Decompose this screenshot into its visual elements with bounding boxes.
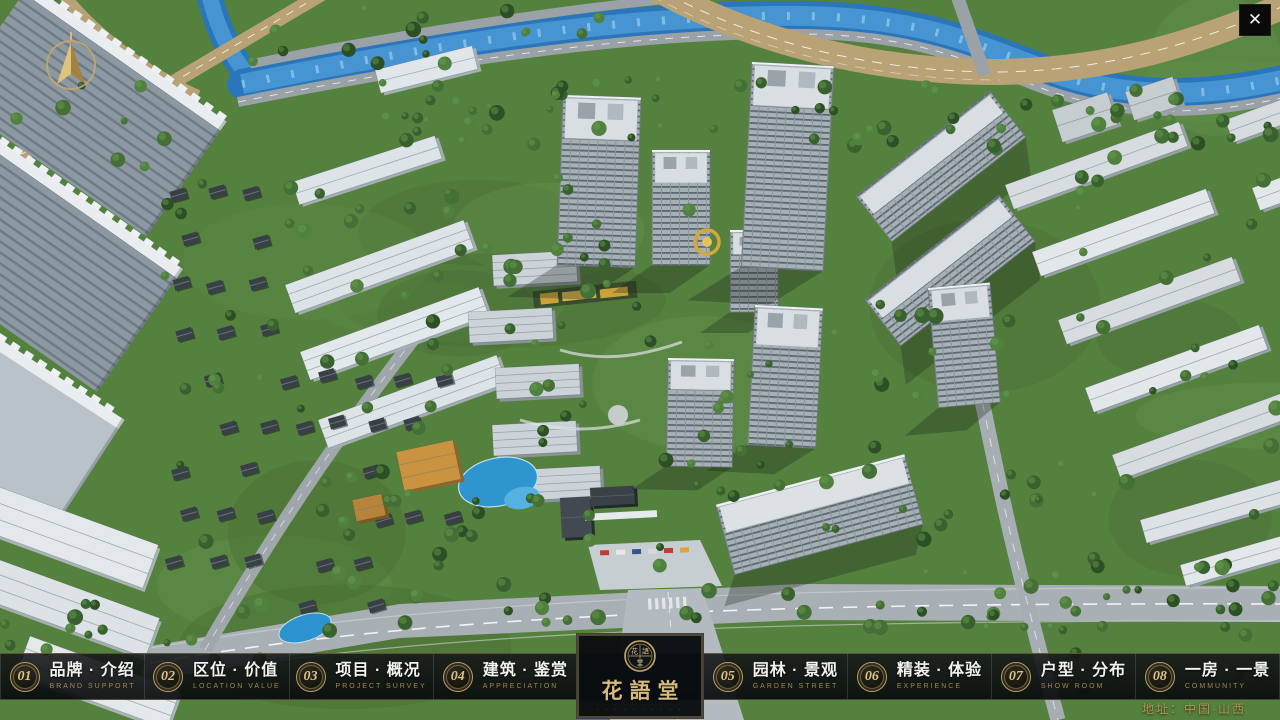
- nav-item-number-badge: 04: [443, 662, 473, 692]
- nav-item-label-zh: 品牌 · 介绍: [50, 662, 136, 680]
- nav-item-number-badge: 01: [10, 662, 40, 692]
- nav-item-label-en: APPRECIATION: [483, 683, 568, 691]
- nav-item-number-badge: 07: [1001, 662, 1031, 692]
- project-logo-plaque[interactable]: 花 語 堂 花語堂 · · · · · · · · · ·: [576, 633, 704, 719]
- aerial-masterplan-render[interactable]: [0, 0, 1280, 720]
- svg-text:堂: 堂: [637, 658, 644, 667]
- logo-title: 花語堂: [602, 675, 686, 705]
- nav-item-text: 精装 · 体验 EXPERIENCE: [897, 662, 982, 690]
- nav-item[interactable]: 02 区位 · 价值 LOCATION VALUE: [144, 654, 288, 699]
- nav-item-text: 一房 · 一景 COMMUNITY: [1185, 662, 1270, 690]
- nav-item-text: 品牌 · 介绍 BRAND SUPPORT: [50, 662, 136, 690]
- nav-item-text: 建筑 · 鉴赏 APPRECIATION: [483, 662, 568, 690]
- nav-item-text: 户型 · 分布 SHOW ROOM: [1041, 662, 1126, 690]
- address-label: 地址：中国·山西: [1142, 700, 1246, 717]
- nav-item-number-badge: 08: [1145, 662, 1175, 692]
- nav-item[interactable]: 01 品牌 · 介绍 BRAND SUPPORT: [0, 654, 144, 699]
- nav-item-label-en: SHOW ROOM: [1041, 683, 1126, 691]
- nav-item-text: 项目 · 概况 PROJECT SURVEY: [336, 662, 427, 690]
- nav-item-label-en: LOCATION VALUE: [193, 683, 281, 691]
- svg-text:花: 花: [631, 647, 638, 656]
- nav-item-label-en: BRAND SUPPORT: [50, 683, 136, 691]
- nav-item-label-en: PROJECT SURVEY: [336, 683, 427, 691]
- nav-item-number-badge: 03: [296, 662, 326, 692]
- nav-item-text: 园林 · 景观 GARDEN STREET: [753, 662, 839, 690]
- nav-item[interactable]: 06 精装 · 体验 EXPERIENCE: [847, 654, 991, 699]
- nav-item-label-en: GARDEN STREET: [753, 683, 839, 691]
- nav-item[interactable]: 05 园林 · 景观 GARDEN STREET: [703, 654, 847, 699]
- nav-item[interactable]: 04 建筑 · 鉴赏 APPRECIATION: [433, 654, 577, 699]
- logo-seal-icon: 花 語 堂: [623, 639, 657, 673]
- close-icon[interactable]: ✕: [1239, 4, 1271, 36]
- north-compass-icon[interactable]: [42, 32, 100, 94]
- nav-group-left: 01 品牌 · 介绍 BRAND SUPPORT 02 区位 · 价值 LOCA…: [0, 654, 577, 699]
- nav-item-label-zh: 区位 · 价值: [193, 662, 281, 680]
- svg-text:語: 語: [642, 647, 649, 656]
- nav-item-number-badge: 05: [713, 662, 743, 692]
- nav-item-label-zh: 项目 · 概况: [336, 662, 427, 680]
- nav-item-label-zh: 户型 · 分布: [1041, 662, 1126, 680]
- nav-item-label-zh: 建筑 · 鉴赏: [483, 662, 568, 680]
- nav-item[interactable]: 08 一房 · 一景 COMMUNITY: [1135, 654, 1280, 699]
- nav-item-label-zh: 精装 · 体验: [897, 662, 982, 680]
- nav-group-right: 05 园林 · 景观 GARDEN STREET 06 精装 · 体验 EXPE…: [703, 654, 1280, 699]
- nav-item-label-en: COMMUNITY: [1185, 683, 1270, 691]
- nav-item[interactable]: 07 户型 · 分布 SHOW ROOM: [991, 654, 1135, 699]
- nav-item-number-badge: 06: [857, 662, 887, 692]
- logo-tagline: · · · · · · · · · ·: [597, 707, 683, 713]
- nav-item-label-zh: 园林 · 景观: [753, 662, 839, 680]
- nav-item-label-zh: 一房 · 一景: [1185, 662, 1270, 680]
- nav-item[interactable]: 03 项目 · 概况 PROJECT SURVEY: [289, 654, 433, 699]
- nav-item-label-en: EXPERIENCE: [897, 683, 982, 691]
- nav-item-text: 区位 · 价值 LOCATION VALUE: [193, 662, 281, 690]
- masterplan-viewport[interactable]: ✕ 01 品牌 · 介绍 BRAND SUPPORT 02 区位 · 价值 LO…: [0, 0, 1280, 720]
- nav-item-number-badge: 02: [153, 662, 183, 692]
